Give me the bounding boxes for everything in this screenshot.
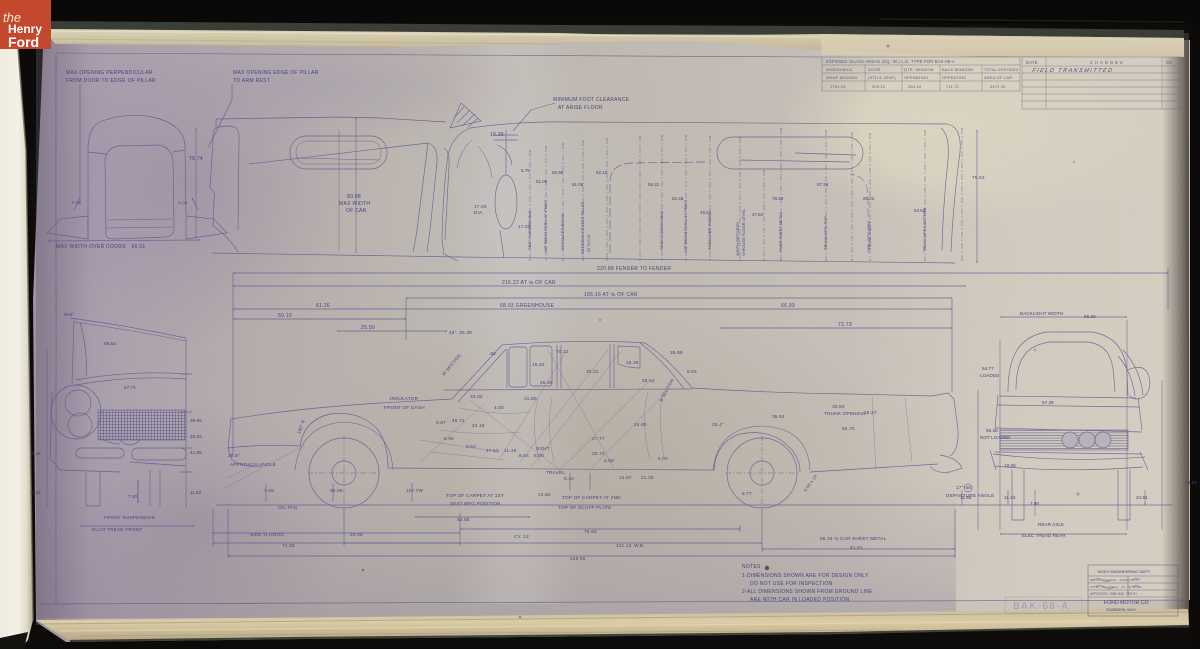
svg-text:61.06: 61.06	[572, 182, 584, 187]
svg-text:DO NOT USE FOR INSPECTION: DO NOT USE FOR INSPECTION	[750, 581, 833, 587]
svg-text:TRUNK OPN. TOP: TRUNK OPN. TOP	[823, 216, 828, 250]
svg-text:27.77: 27.77	[592, 436, 605, 441]
svg-text:DEARBORN, MICH.: DEARBORN, MICH.	[1106, 608, 1137, 612]
svg-text:2-ALL DIMENSIONS SHOWN FROM GR: 2-ALL DIMENSIONS SHOWN FROM GROUND LINE	[742, 589, 873, 595]
svg-text:WINDSHIELD: WINDSHIELD	[826, 67, 852, 72]
svg-text:711.72: 711.72	[946, 84, 959, 89]
svg-text:66.22: 66.22	[863, 196, 875, 201]
svg-text:FIELD TRANSMITTED: FIELD TRANSMITTED	[1032, 68, 1114, 74]
svg-text:DATE: DATE	[1026, 60, 1038, 65]
svg-text:60.96: 60.96	[552, 170, 564, 175]
svg-text:71.25: 71.25	[282, 543, 295, 548]
svg-text:65.26: 65.26	[1084, 314, 1096, 319]
svg-text:TRAVEL: TRAVEL	[546, 470, 565, 475]
svg-text:131.12 W.B.: 131.12 W.B.	[616, 543, 645, 548]
svg-text:CK. BY J.M. Schberg CK. T.E.: CK. BY J.M. Schberg CK. T.E. Brown	[1090, 585, 1142, 589]
svg-text:52.48: 52.48	[672, 196, 684, 201]
svg-text:8.77: 8.77	[742, 491, 752, 496]
svg-text:OF CAR: OF CAR	[346, 208, 367, 214]
svg-text:OPERATING: OPERATING	[942, 75, 966, 80]
svg-text:41.08: 41.08	[190, 450, 202, 455]
svg-text:BAK-68-A: BAK-68-A	[1013, 601, 1069, 612]
svg-text:AT O.C.H.: AT O.C.H.	[586, 234, 591, 252]
svg-text:FROM DOOR TO EDGE OF PILLAR: FROM DOOR TO EDGE OF PILLAR	[66, 78, 156, 84]
svg-text:5.96: 5.96	[444, 436, 454, 441]
svg-text:OIL PAN: OIL PAN	[278, 505, 297, 510]
svg-text:7.88: 7.88	[264, 488, 274, 493]
svg-text:25.50: 25.50	[361, 325, 375, 331]
svg-text:REAR AXLE: REAR AXLE	[1038, 522, 1064, 527]
svg-text:1-DIMENSIONS SHOWN ARE FOR DES: 1-DIMENSIONS SHOWN ARE FOR DESIGN ONLY	[742, 573, 869, 579]
svg-text:WIDTH BETWEEN: WIDTH BETWEEN	[735, 222, 740, 256]
svg-text:62.10: 62.10	[596, 170, 608, 175]
svg-text:56.70: 56.70	[842, 426, 855, 431]
svg-text:55.34 ℅ CAR SHEET METAL: 55.34 ℅ CAR SHEET METAL	[820, 536, 887, 541]
svg-text:ELEC TREAD REAR: ELEC TREAD REAR	[1022, 533, 1066, 538]
svg-text:16.25: 16.25	[490, 132, 504, 138]
svg-text:35.83: 35.83	[832, 404, 845, 409]
svg-text:TRUNK OPEN BOTTOM: TRUNK OPEN BOTTOM	[922, 208, 927, 252]
svg-text:4.58: 4.58	[604, 458, 614, 463]
svg-text:S.08: S.08	[178, 200, 188, 205]
svg-text:30.22: 30.22	[586, 369, 599, 374]
svg-text:MAX OPENING PERPENDICULAR: MAX OPENING PERPENDICULAR	[66, 70, 153, 76]
svg-text:228.96: 228.96	[570, 556, 586, 561]
svg-text:216.22 AT ℅ OF CAR: 216.22 AT ℅ OF CAR	[502, 280, 556, 286]
svg-text:AREA OF CAR: AREA OF CAR	[984, 75, 1012, 80]
svg-text:OVER SHEET METAL: OVER SHEET METAL	[778, 211, 783, 252]
svg-text:MINIMUM FOOT CLEARANCE: MINIMUM FOOT CLEARANCE	[553, 97, 630, 103]
svg-text:31.80: 31.80	[524, 396, 537, 401]
svg-text:TOP OF CARPET AT 2ND: TOP OF CARPET AT 2ND	[562, 495, 621, 500]
svg-text:5.00: 5.00	[658, 456, 668, 461]
svg-text:CK.: CK.	[1166, 60, 1174, 65]
svg-text:BACK WINDOW: BACK WINDOW	[942, 67, 973, 72]
svg-text:APPROVED 1958 BAK TENTH: APPROVED 1958 BAK TENTH	[1090, 592, 1137, 596]
svg-text:TOP OF SCUFF PLATE: TOP OF SCUFF PLATE	[558, 505, 612, 510]
svg-text:25.83: 25.83	[190, 434, 202, 439]
svg-text:35.95: 35.95	[670, 350, 683, 355]
svg-text:24.51: 24.51	[1136, 495, 1148, 500]
svg-text:165.16 AT ℅ OF CAR: 165.16 AT ℅ OF CAR	[584, 292, 638, 298]
svg-text:25.89: 25.89	[330, 488, 343, 493]
svg-text:6.04: 6.04	[687, 369, 697, 374]
svg-text:8.64: 8.64	[519, 453, 529, 458]
svg-text:11.55: 11.55	[960, 495, 972, 500]
svg-text:21.25: 21.25	[641, 475, 654, 480]
svg-text:.82: .82	[489, 351, 496, 356]
svg-text:46.71: 46.71	[452, 418, 465, 423]
svg-text:51.00: 51.00	[536, 179, 548, 184]
svg-text:FORD MOTOR CO: FORD MOTOR CO	[1104, 600, 1149, 606]
svg-text:54.77: 54.77	[982, 366, 994, 371]
svg-text:35.84: 35.84	[772, 414, 785, 419]
svg-text:220.88 FENDER TO FENDER: 220.88 FENDER TO FENDER	[597, 266, 671, 272]
svg-text:55.31: 55.31	[648, 182, 660, 187]
svg-text:67.74: 67.74	[124, 385, 136, 390]
svg-text:BACKLIGHT WIDTH: BACKLIGHT WIDTH	[1020, 311, 1063, 316]
svg-text:16.27: 16.27	[864, 410, 877, 415]
svg-text:5.00: 5.00	[534, 453, 544, 458]
svg-text:ARE WITH CAR IN LOADED POSITIO: ARE WITH CAR IN LOADED POSITION	[750, 597, 849, 603]
svg-text:68.03 GREENHOUSE: 68.03 GREENHOUSE	[500, 303, 555, 309]
svg-text:66.93: 66.93	[781, 303, 795, 309]
svg-text:110 TW: 110 TW	[406, 488, 424, 493]
svg-text:QTR. WINDOW: QTR. WINDOW	[904, 67, 934, 72]
svg-text:INSULATOR: INSULATOR	[390, 396, 419, 401]
svg-text:75.62: 75.62	[972, 175, 985, 180]
svg-text:48° 25.39: 48° 25.39	[449, 330, 472, 335]
svg-text:76.93: 76.93	[584, 529, 597, 534]
svg-text:5.75: 5.75	[521, 168, 530, 173]
svg-text:DIA.: DIA.	[474, 210, 484, 215]
svg-text:WRAP AROUND: WRAP AROUND	[826, 75, 858, 80]
svg-text:TRUNK OPENING: TRUNK OPENING	[824, 411, 866, 416]
svg-text:HIP ROOM THRU "H" POINT: HIP ROOM THRU "H" POINT	[683, 199, 688, 252]
svg-text:11.46: 11.46	[504, 448, 517, 453]
svg-text:SHOULDER ROOM: SHOULDER ROOM	[707, 214, 712, 250]
svg-text:74.27: 74.27	[1185, 480, 1197, 485]
svg-text:70.22: 70.22	[556, 349, 569, 354]
svg-text:42.55: 42.55	[457, 517, 470, 522]
svg-text:50.10: 50.10	[278, 313, 292, 319]
svg-text:10.06: 10.06	[1004, 463, 1016, 468]
svg-text:TO ARM REST: TO ARM REST	[233, 78, 270, 84]
svg-text:15.46: 15.46	[626, 360, 639, 365]
svg-text:TRUNK WIDTH: TRUNK WIDTH	[867, 222, 872, 250]
svg-text:MAX OPENING EDGE OF PILLAR: MAX OPENING EDGE OF PILLAR	[233, 70, 319, 76]
svg-text:SEAT CUSHION MAX: SEAT CUSHION MAX	[659, 210, 664, 250]
svg-text:CHANGES: CHANGES	[1090, 60, 1125, 65]
svg-text:SIDE ℅ HOOD: SIDE ℅ HOOD	[250, 532, 284, 537]
svg-text:25.00: 25.00	[350, 532, 363, 537]
svg-text:NOTES: NOTES	[742, 564, 761, 570]
svg-text:7.30: 7.30	[128, 494, 138, 499]
svg-text:61.26: 61.26	[316, 303, 330, 309]
svg-text:72.73: 72.73	[838, 322, 852, 328]
svg-text:EXPOSED GLASS AREAS (SQ. IN.): EXPOSED GLASS AREAS (SQ. IN.) L.B. TYPE …	[826, 59, 955, 64]
svg-text:16.80: 16.80	[634, 422, 647, 427]
svg-text:925.12: 925.12	[872, 84, 885, 89]
svg-text:30.73: 30.73	[592, 451, 605, 456]
svg-text:8.40: 8.40	[564, 476, 574, 481]
svg-text:OPERATING: OPERATING	[904, 75, 928, 80]
svg-text:11.34: 11.34	[1004, 495, 1016, 500]
svg-text:9.52: 9.52	[466, 444, 476, 449]
svg-text:17°-50': 17°-50'	[956, 485, 972, 490]
svg-text:4.00: 4.00	[494, 405, 504, 410]
svg-text:25.4°: 25.4°	[712, 422, 724, 427]
svg-text:BETWEEN CENTER PILLAR: BETWEEN CENTER PILLAR	[580, 202, 585, 254]
svg-text:78.74: 78.74	[189, 156, 203, 162]
svg-text:39.96: 39.96	[190, 418, 202, 423]
svg-text:HIP ROOM THRU "X" POINT: HIP ROOM THRU "X" POINT	[543, 199, 548, 252]
svg-text:66.52: 66.52	[104, 341, 116, 346]
svg-text:25.54: 25.54	[642, 378, 655, 383]
svg-text:57.26: 57.26	[1042, 400, 1054, 405]
svg-text:SHOULDER ROOM: SHOULDER ROOM	[560, 214, 565, 250]
svg-text:FRONT OF DASH: FRONT OF DASH	[384, 405, 425, 410]
svg-text:7.80: 7.80	[1030, 501, 1040, 506]
svg-text:254.10: 254.10	[908, 84, 922, 89]
svg-text:29.8°: 29.8°	[228, 453, 240, 458]
svg-text:59.8°: 59.8°	[64, 312, 74, 317]
svg-text:1701.03: 1701.03	[830, 84, 845, 89]
svg-text:47.53: 47.53	[486, 448, 499, 453]
svg-text:78.23: 78.23	[772, 196, 784, 201]
svg-text:67.28: 67.28	[817, 182, 829, 187]
svg-text:80.08: 80.08	[347, 194, 361, 200]
svg-text:3472.43: 3472.43	[990, 84, 1005, 89]
svg-text:MR. W.J. Traughber DATE 2-10-: MR. W.J. Traughber DATE 2-10-57	[1090, 578, 1139, 582]
svg-text:10.58: 10.58	[30, 451, 41, 456]
svg-text:(STD & VENT): (STD & VENT)	[868, 75, 896, 80]
svg-text:9.87: 9.87	[436, 420, 446, 425]
svg-text:Ford: Ford	[8, 34, 39, 50]
svg-text:12.87: 12.87	[619, 475, 632, 480]
svg-text:MAX WIDTH: MAX WIDTH	[339, 201, 370, 207]
svg-text:41.61: 41.61	[850, 545, 863, 550]
svg-text:AT ARISE FLOOR: AT ARISE FLOOR	[558, 105, 603, 111]
svg-text:APPROACH ANGLE: APPROACH ANGLE	[230, 462, 276, 467]
svg-text:11.52: 11.52	[30, 490, 41, 495]
svg-text:15.62: 15.62	[532, 362, 545, 367]
svg-text:24.16: 24.16	[472, 423, 485, 428]
svg-text:LOADED: LOADED	[980, 373, 1000, 378]
svg-text:25.59: 25.59	[540, 380, 553, 385]
svg-text:SEAT MFG POSITION: SEAT MFG POSITION	[450, 501, 501, 506]
svg-text:TOTAL EXPOSED: TOTAL EXPOSED	[984, 67, 1019, 72]
svg-text:MAX WIDTH OVER DOORS 66.51: MAX WIDTH OVER DOORS 66.51	[56, 244, 146, 250]
svg-text:TOP OF CARPET AT 1ST: TOP OF CARPET AT 1ST	[446, 493, 504, 498]
svg-text:BODY ENGINEERING DEPT.: BODY ENGINEERING DEPT.	[1098, 569, 1151, 574]
svg-text:SEAT CUSHION MAX: SEAT CUSHION MAX	[527, 210, 532, 250]
svg-text:DOOR: DOOR	[868, 67, 880, 72]
svg-text:11.52: 11.52	[190, 490, 202, 495]
svg-text:ELCO TREAD FRONT: ELCO TREAD FRONT	[92, 527, 143, 532]
svg-text:SGHT: SGHT	[536, 446, 550, 451]
svg-text:47.54: 47.54	[752, 212, 764, 217]
svg-text:13.82: 13.82	[538, 492, 551, 497]
svg-text:NOT LOADED: NOT LOADED	[980, 435, 1011, 440]
svg-text:56.36: 56.36	[986, 428, 998, 433]
svg-text:17.00: 17.00	[474, 204, 487, 209]
svg-text:FRONT SUSPENSION: FRONT SUSPENSION	[104, 515, 155, 520]
svg-text:34.02: 34.02	[470, 394, 483, 399]
svg-text:W'HOUSE FLOOR LEVEL: W'HOUSE FLOOR LEVEL	[741, 208, 746, 256]
svg-text:CY. 12: CY. 12	[514, 534, 529, 539]
svg-text:P.08: P.08	[72, 200, 81, 205]
